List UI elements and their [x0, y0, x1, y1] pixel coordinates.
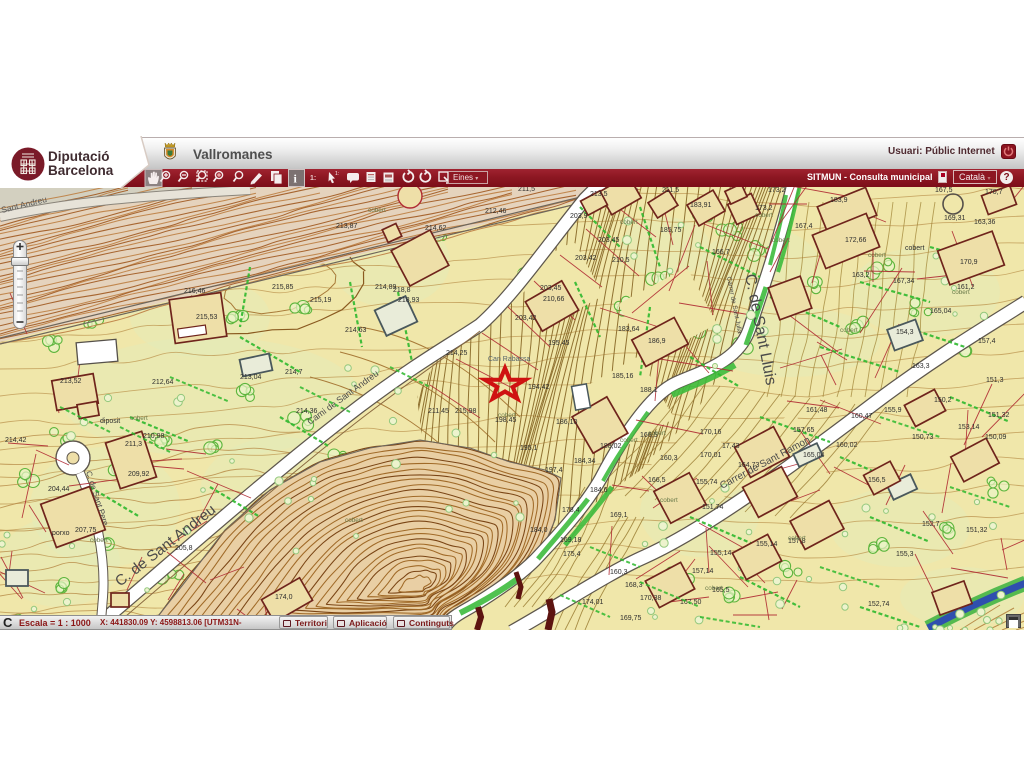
- svg-text:170,9: 170,9: [960, 259, 978, 266]
- svg-text:cobert: cobert: [788, 535, 806, 542]
- svg-text:215,53: 215,53: [196, 314, 218, 321]
- svg-text:169,1: 169,1: [610, 512, 628, 519]
- svg-text:183,64: 183,64: [618, 326, 640, 333]
- svg-text:203,9: 203,9: [570, 213, 588, 220]
- svg-text:209,92: 209,92: [128, 471, 150, 478]
- svg-text:cobert: cobert: [840, 327, 858, 334]
- svg-text:160,3: 160,3: [660, 455, 678, 462]
- svg-text:170,7: 170,7: [985, 189, 1003, 196]
- svg-text:157,14: 157,14: [692, 568, 714, 575]
- svg-text:214,25: 214,25: [446, 350, 468, 357]
- svg-text:186,10: 186,10: [556, 419, 578, 426]
- svg-text:212,46: 212,46: [485, 208, 507, 215]
- svg-text:210,98: 210,98: [143, 433, 165, 440]
- svg-text:150,09: 150,09: [985, 434, 1007, 441]
- svg-text:170,38: 170,38: [640, 595, 662, 602]
- svg-text:165,04: 165,04: [930, 308, 952, 315]
- svg-text:172,66: 172,66: [845, 237, 867, 244]
- svg-text:173,2: 173,2: [768, 187, 786, 194]
- svg-text:173,2: 173,2: [755, 205, 773, 212]
- svg-text:cobert: cobert: [772, 237, 790, 244]
- svg-text:154,3: 154,3: [896, 329, 914, 336]
- svg-text:174,01: 174,01: [582, 599, 604, 606]
- svg-text:cobert: cobert: [905, 245, 925, 252]
- svg-text:150,73: 150,73: [912, 434, 934, 441]
- svg-text:211,5: 211,5: [662, 187, 679, 194]
- svg-text:156,5: 156,5: [868, 477, 886, 484]
- svg-text:151,74: 151,74: [702, 504, 724, 511]
- svg-text:cobert: cobert: [90, 537, 108, 544]
- svg-text:161,48: 161,48: [806, 407, 828, 414]
- svg-text:153,14: 153,14: [958, 424, 980, 431]
- svg-text:211,5: 211,5: [518, 187, 535, 193]
- svg-text:151,32: 151,32: [988, 412, 1010, 419]
- svg-text:174,0: 174,0: [275, 594, 293, 601]
- svg-text:183,9: 183,9: [830, 197, 848, 204]
- svg-text:211,45: 211,45: [428, 408, 449, 415]
- svg-text:213,04: 213,04: [240, 374, 262, 381]
- svg-text:213,5: 213,5: [590, 191, 608, 198]
- svg-text:157,4: 157,4: [978, 338, 996, 345]
- svg-text:214,42: 214,42: [5, 437, 27, 444]
- svg-text:170,16: 170,16: [700, 429, 722, 436]
- svg-text:214,62: 214,62: [425, 225, 447, 232]
- svg-text:184,34: 184,34: [574, 458, 596, 465]
- svg-text:167,34: 167,34: [893, 278, 915, 285]
- svg-text:cobert: cobert: [620, 219, 638, 226]
- svg-text:160,3: 160,3: [610, 569, 628, 576]
- svg-text:214,7: 214,7: [285, 369, 303, 376]
- svg-text:155,74: 155,74: [696, 479, 718, 486]
- svg-text:166,7: 166,7: [712, 249, 730, 256]
- svg-text:169,18: 169,18: [560, 537, 582, 544]
- svg-text:211,3: 211,3: [125, 441, 142, 448]
- svg-text:150,2: 150,2: [934, 397, 952, 404]
- svg-text:215,98: 215,98: [455, 408, 477, 415]
- svg-text:185,16: 185,16: [612, 373, 634, 380]
- svg-text:cobert: cobert: [345, 517, 363, 524]
- svg-text:diposit: diposit: [100, 418, 120, 425]
- svg-text:203,45: 203,45: [598, 237, 620, 244]
- svg-text:210,5: 210,5: [612, 257, 630, 264]
- svg-text:188,1: 188,1: [640, 387, 658, 394]
- svg-text:218,8: 218,8: [393, 287, 411, 294]
- svg-text:152,7: 152,7: [922, 521, 940, 528]
- svg-text:1:: 1:: [335, 171, 339, 177]
- svg-text:186,9: 186,9: [648, 338, 666, 345]
- svg-text:152,74: 152,74: [868, 601, 890, 608]
- svg-text:160,47: 160,47: [851, 413, 873, 420]
- svg-text:porxo: porxo: [52, 530, 70, 537]
- svg-text:184,6: 184,6: [590, 487, 608, 494]
- svg-text:cobert: cobert: [620, 437, 638, 444]
- svg-text:cobert: cobert: [705, 585, 723, 592]
- svg-text:cobert: cobert: [368, 207, 386, 214]
- svg-text:cobert: cobert: [755, 212, 773, 219]
- svg-text:163,36: 163,36: [974, 219, 996, 226]
- svg-text:155,14: 155,14: [710, 550, 732, 557]
- svg-text:185,75: 185,75: [660, 227, 682, 234]
- svg-text:195,45: 195,45: [548, 340, 570, 347]
- svg-text:194,42: 194,42: [528, 384, 550, 391]
- svg-text:Can Rabassa: Can Rabassa: [488, 356, 531, 363]
- svg-text:169,75: 169,75: [620, 615, 642, 622]
- svg-text:215,19: 215,19: [310, 297, 332, 304]
- svg-text:163,2: 163,2: [852, 272, 870, 279]
- svg-text:155,9: 155,9: [884, 407, 902, 414]
- svg-text:cobert: cobert: [130, 415, 148, 422]
- svg-text:163,3: 163,3: [912, 363, 930, 370]
- svg-text:216,46: 216,46: [184, 288, 206, 295]
- svg-text:cobert: cobert: [868, 252, 886, 259]
- svg-text:212,64: 212,64: [152, 379, 174, 386]
- svg-text:17,43: 17,43: [722, 443, 740, 450]
- svg-text:160,02: 160,02: [836, 442, 858, 449]
- svg-text:203,42: 203,42: [575, 255, 597, 262]
- svg-text:207,75: 207,75: [75, 527, 97, 534]
- svg-text:214,36: 214,36: [296, 408, 318, 415]
- svg-text:cobert: cobert: [660, 497, 678, 504]
- svg-text:1:: 1:: [310, 175, 316, 182]
- svg-text:151,32: 151,32: [966, 527, 988, 534]
- svg-text:188,02: 188,02: [600, 443, 622, 450]
- svg-text:167,5: 167,5: [935, 187, 953, 194]
- svg-text:169,31: 169,31: [944, 215, 966, 222]
- svg-text:183,91: 183,91: [690, 202, 712, 209]
- svg-text:166,5: 166,5: [648, 477, 666, 484]
- svg-text:157,65: 157,65: [793, 427, 815, 434]
- svg-text:cobert: cobert: [648, 430, 666, 437]
- svg-text:205,8: 205,8: [175, 545, 193, 552]
- svg-text:151,3: 151,3: [986, 377, 1004, 384]
- svg-text:218,93: 218,93: [398, 297, 420, 304]
- svg-text:178,4: 178,4: [562, 507, 580, 514]
- svg-text:155,3: 155,3: [896, 551, 914, 558]
- svg-text:204,44: 204,44: [48, 486, 70, 493]
- svg-text:164,73: 164,73: [738, 462, 760, 469]
- svg-text:184,0: 184,0: [530, 527, 548, 534]
- svg-text:203,42: 203,42: [515, 315, 537, 322]
- svg-text:195,1: 195,1: [520, 445, 538, 452]
- svg-text:170,01: 170,01: [700, 452, 722, 459]
- svg-text:215,85: 215,85: [272, 284, 294, 291]
- svg-text:155,14: 155,14: [756, 541, 778, 548]
- svg-text:197,4: 197,4: [545, 467, 563, 474]
- svg-text:cobert: cobert: [498, 412, 516, 419]
- svg-text:165,04: 165,04: [803, 452, 825, 459]
- svg-text:213,52: 213,52: [60, 378, 82, 385]
- svg-text:175,4: 175,4: [563, 551, 581, 558]
- svg-text:214,63: 214,63: [345, 327, 367, 334]
- svg-text:cobert: cobert: [952, 289, 970, 296]
- svg-text:167,4: 167,4: [795, 223, 813, 230]
- svg-text:213,87: 213,87: [336, 223, 358, 230]
- svg-text:203,45: 203,45: [540, 285, 562, 292]
- svg-text:210,66: 210,66: [543, 296, 565, 303]
